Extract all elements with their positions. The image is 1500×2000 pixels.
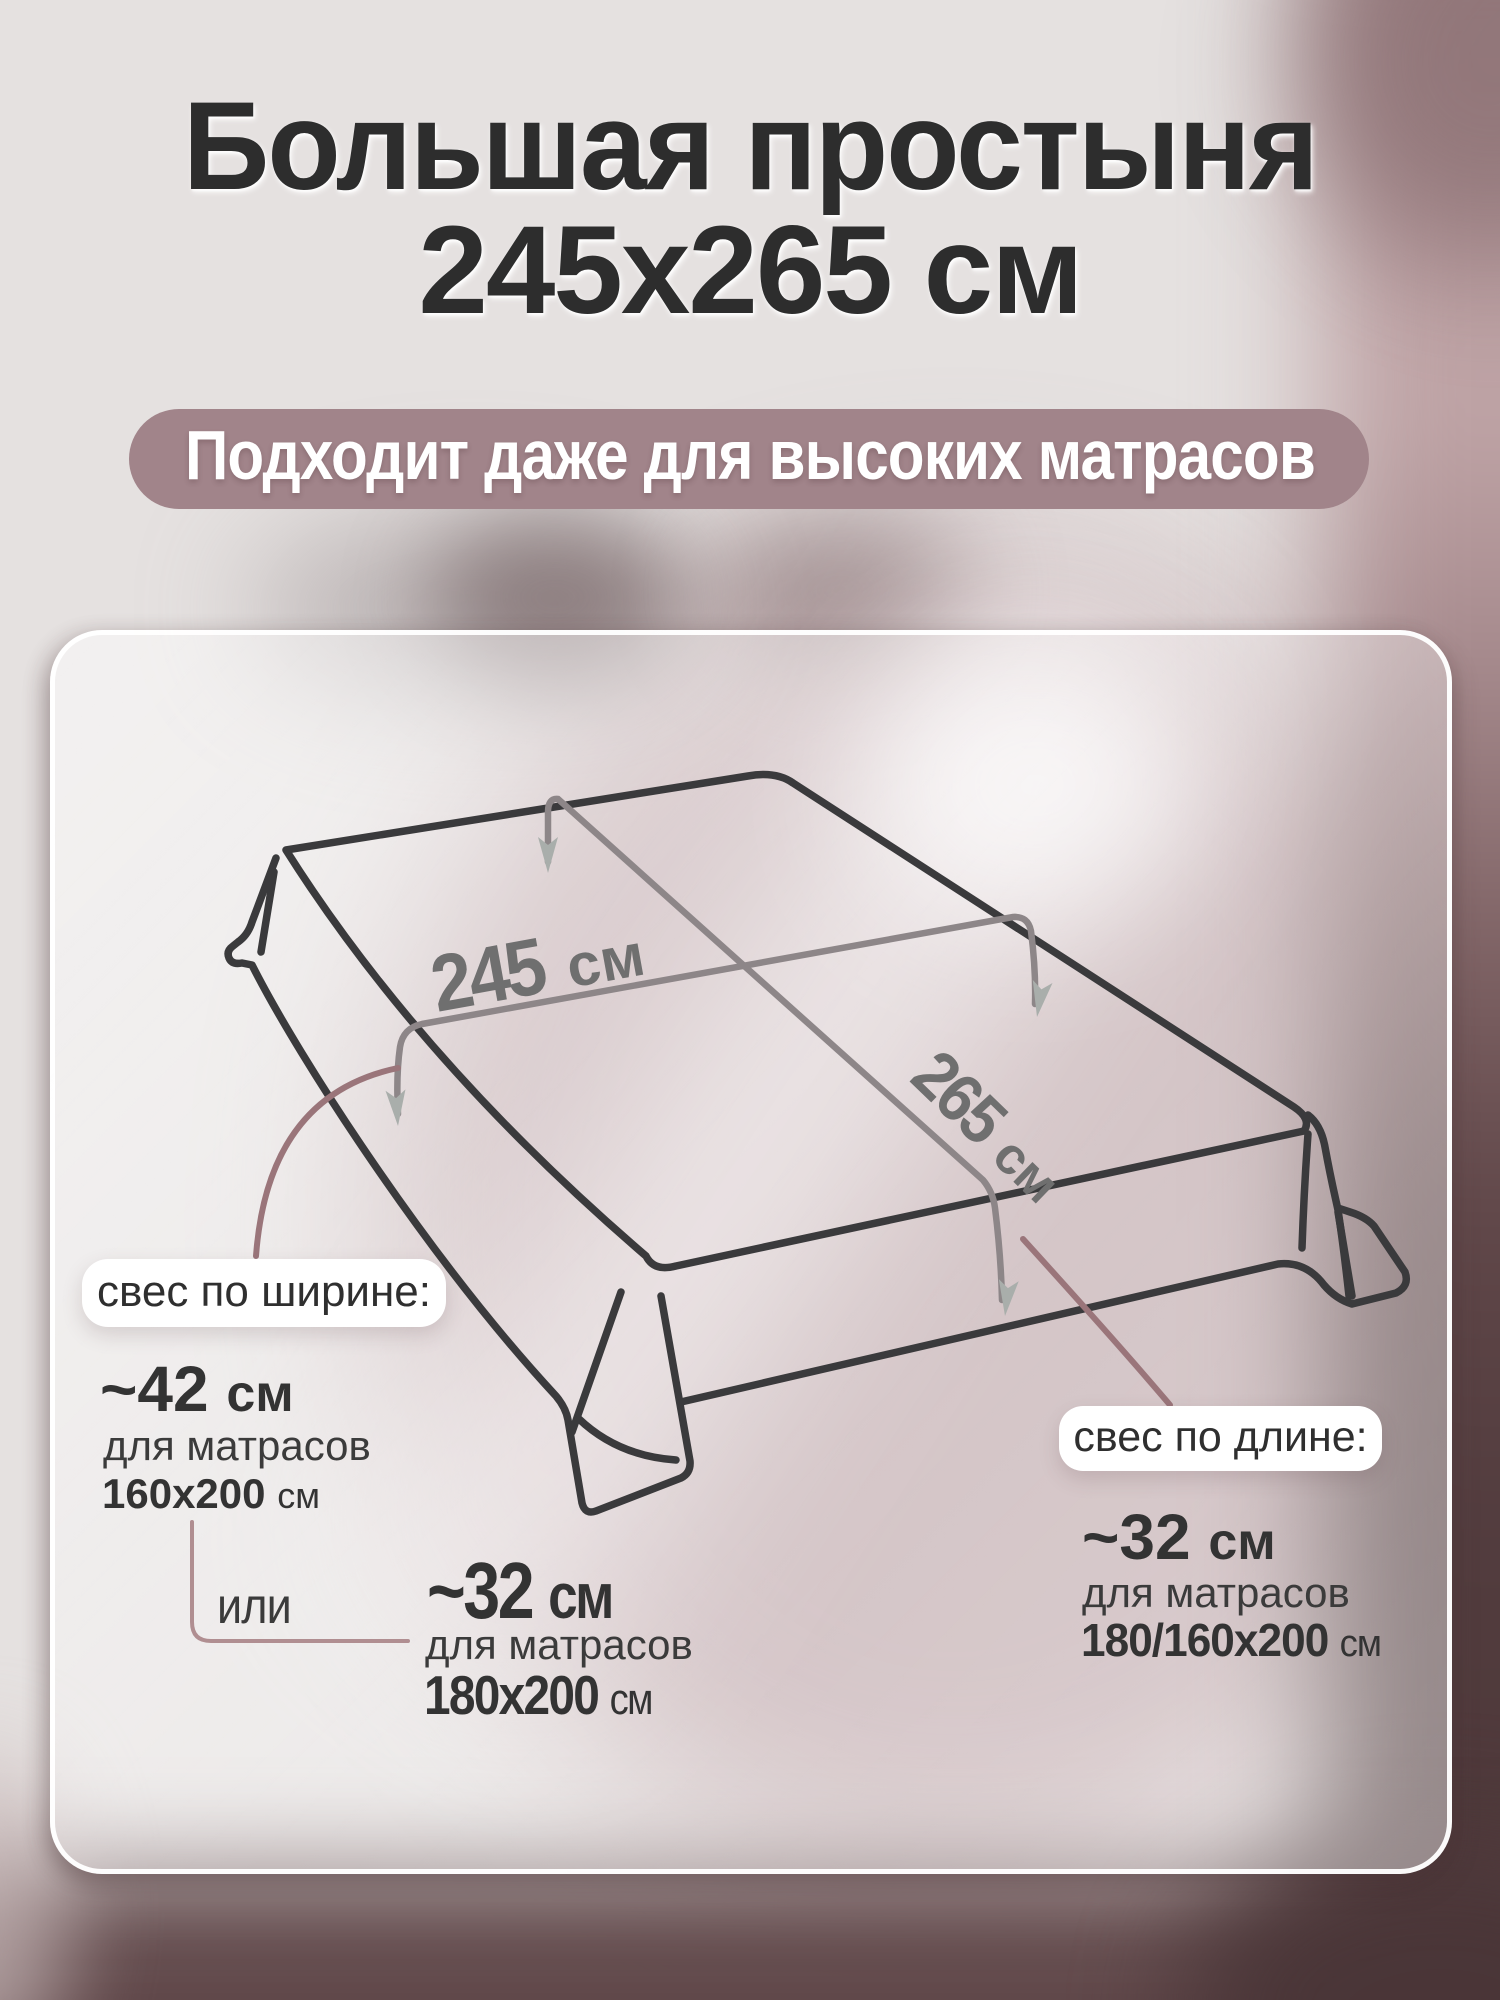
svg-text:265: 265 <box>898 1036 1021 1158</box>
svg-text:см: см <box>561 921 649 1001</box>
svg-text:245: 245 <box>424 921 552 1029</box>
